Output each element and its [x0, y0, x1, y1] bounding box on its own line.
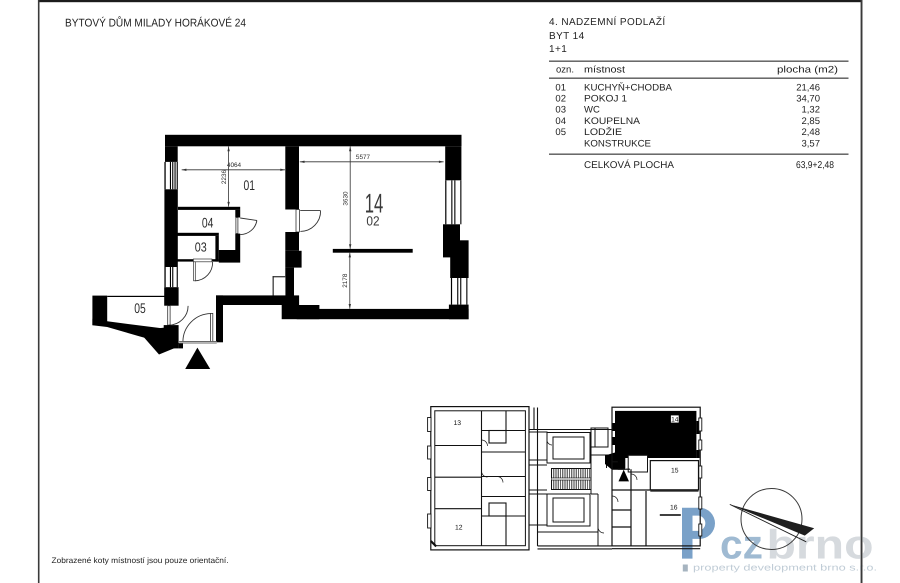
- svg-text:21,46: 21,46: [796, 82, 820, 93]
- svg-text:KUCHYŇ+CHODBA: KUCHYŇ+CHODBA: [584, 81, 673, 93]
- svg-text:34,70: 34,70: [796, 94, 820, 105]
- svg-text:04: 04: [555, 116, 566, 127]
- svg-text:WC: WC: [584, 105, 600, 116]
- svg-text:LODŽIE: LODŽIE: [584, 126, 622, 138]
- svg-text:05: 05: [555, 127, 566, 138]
- svg-text:15: 15: [671, 467, 679, 474]
- svg-text:brno: brno: [767, 522, 874, 568]
- svg-text:CELKOVÁ PLOCHA: CELKOVÁ PLOCHA: [584, 159, 674, 171]
- svg-text:01: 01: [555, 82, 566, 93]
- svg-text:12: 12: [455, 525, 463, 532]
- svg-text:05: 05: [134, 300, 146, 316]
- svg-text:4064: 4064: [227, 162, 242, 169]
- svg-text:02: 02: [555, 94, 566, 105]
- svg-text:2236: 2236: [221, 169, 228, 184]
- svg-text:16: 16: [670, 505, 678, 512]
- svg-text:13: 13: [454, 420, 462, 427]
- svg-text:plocha (m2): plocha (m2): [777, 65, 838, 76]
- svg-text:2,48: 2,48: [802, 127, 821, 138]
- svg-text:Zobrazené koty místností jsou: Zobrazené koty místností jsou pouze orie…: [52, 556, 229, 565]
- svg-text:3,57: 3,57: [802, 138, 821, 149]
- svg-text:POKOJ 1: POKOJ 1: [584, 94, 627, 105]
- svg-text:02: 02: [366, 213, 379, 228]
- svg-text:1+1: 1+1: [549, 44, 567, 55]
- svg-text:5577: 5577: [356, 154, 371, 161]
- svg-text:BYTOVÝ DŮM MILADY HORÁKOVÉ 24: BYTOVÝ DŮM MILADY HORÁKOVÉ 24: [65, 16, 246, 30]
- svg-text:04: 04: [202, 215, 214, 231]
- svg-text:14: 14: [671, 417, 679, 424]
- svg-text:01: 01: [243, 177, 255, 193]
- svg-text:4. NADZEMNÍ PODLAŽÍ: 4. NADZEMNÍ PODLAŽÍ: [549, 16, 666, 28]
- svg-text:2178: 2178: [342, 273, 349, 288]
- svg-text:3630: 3630: [342, 191, 349, 206]
- svg-text:KONSTRUKCE: KONSTRUKCE: [584, 138, 651, 149]
- svg-text:1,32: 1,32: [802, 105, 821, 116]
- svg-text:property development brno s.r.: property development brno s.r.o.: [693, 562, 877, 572]
- svg-text:BYT 14: BYT 14: [549, 31, 585, 42]
- svg-text:63,9+2,48: 63,9+2,48: [796, 160, 834, 171]
- svg-text:cz: cz: [720, 522, 763, 568]
- svg-text:místnost: místnost: [584, 65, 625, 76]
- svg-text:ozn.: ozn.: [556, 65, 574, 76]
- svg-text:03: 03: [195, 240, 207, 255]
- svg-text:2,85: 2,85: [802, 116, 821, 127]
- svg-text:KOUPELNA: KOUPELNA: [584, 116, 641, 127]
- svg-text:03: 03: [555, 105, 566, 116]
